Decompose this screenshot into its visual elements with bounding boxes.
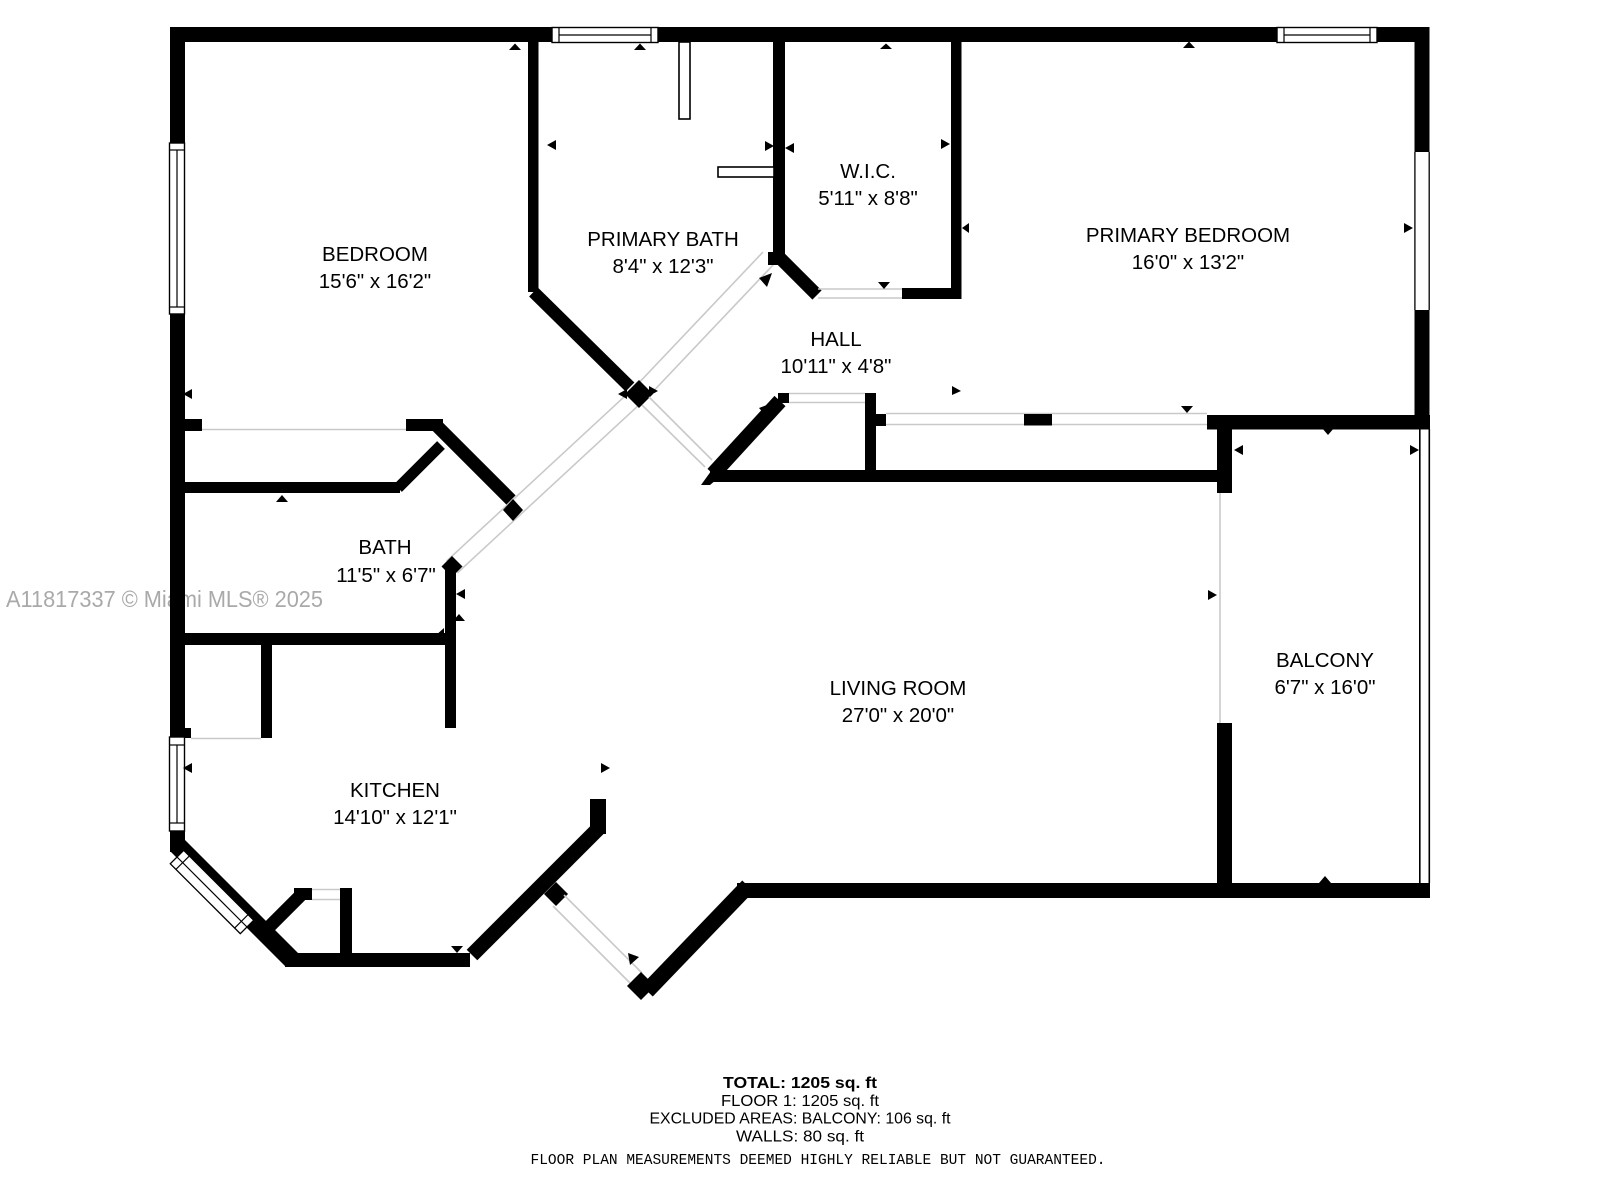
svg-text:16'0" x 13'2": 16'0" x 13'2" — [1132, 251, 1244, 274]
svg-text:6'7" x 16'0": 6'7" x 16'0" — [1274, 676, 1375, 699]
svg-text:W.I.C.: W.I.C. — [840, 160, 896, 183]
svg-text:5'11" x 8'8": 5'11" x 8'8" — [818, 187, 918, 210]
svg-text:PRIMARY BEDROOM: PRIMARY BEDROOM — [1086, 224, 1290, 247]
svg-text:EXCLUDED AREAS: BALCONY: 106 s: EXCLUDED AREAS: BALCONY: 106 sq. ft — [650, 1111, 952, 1128]
svg-text:HALL: HALL — [810, 328, 861, 351]
svg-text:WALLS: 80 sq. ft: WALLS: 80 sq. ft — [736, 1129, 865, 1146]
svg-text:15'6" x 16'2": 15'6" x 16'2" — [319, 270, 431, 293]
svg-text:TOTAL: 1205 sq. ft: TOTAL: 1205 sq. ft — [723, 1075, 878, 1092]
svg-text:LIVING ROOM: LIVING ROOM — [830, 677, 967, 700]
svg-text:14'10" x 12'1": 14'10" x 12'1" — [333, 806, 457, 829]
svg-text:BATH: BATH — [358, 536, 411, 559]
svg-text:27'0" x 20'0": 27'0" x 20'0" — [842, 704, 954, 727]
svg-text:8'4" x 12'3": 8'4" x 12'3" — [612, 255, 713, 278]
svg-text:FLOOR 1: 1205 sq. ft: FLOOR 1: 1205 sq. ft — [721, 1093, 880, 1110]
svg-text:10'11" x 4'8": 10'11" x 4'8" — [781, 355, 892, 378]
svg-text:FLOOR PLAN MEASUREMENTS DEEMED: FLOOR PLAN MEASUREMENTS DEEMED HIGHLY RE… — [531, 1153, 1106, 1169]
svg-text:BEDROOM: BEDROOM — [322, 243, 428, 266]
svg-text:A11817337 © Miami MLS® 2025: A11817337 © Miami MLS® 2025 — [6, 586, 323, 612]
svg-text:KITCHEN: KITCHEN — [350, 779, 440, 802]
svg-text:PRIMARY BATH: PRIMARY BATH — [587, 228, 739, 251]
svg-text:11'5" x 6'7": 11'5" x 6'7" — [336, 564, 436, 587]
svg-text:BALCONY: BALCONY — [1276, 649, 1374, 672]
